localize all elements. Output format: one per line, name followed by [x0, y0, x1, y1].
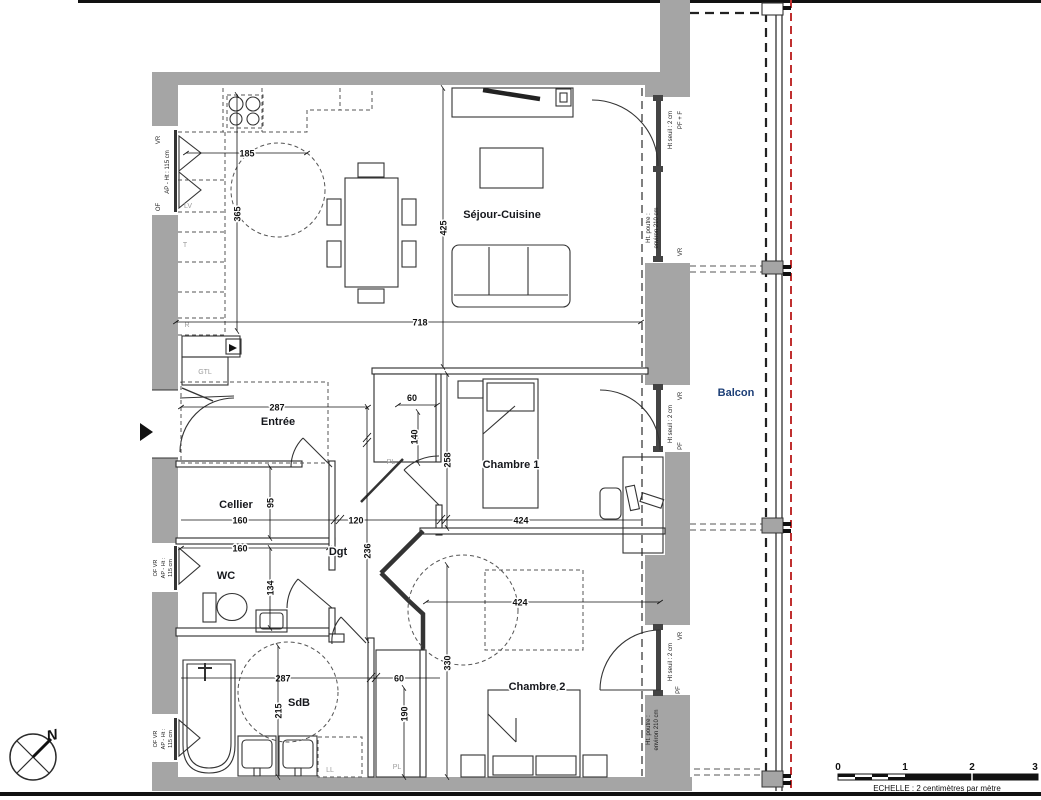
scale-caption: ECHELLE : 2 centimètres par mètre — [873, 784, 1001, 793]
desk-chair-icon — [600, 488, 621, 519]
desk-icon — [600, 457, 664, 553]
svg-text:PF: PF — [676, 686, 682, 694]
entrance-door-leaf — [180, 396, 234, 398]
dim-160-cellier: 160 — [232, 516, 247, 526]
svg-text:AP - Ht :: AP - Ht : — [161, 728, 167, 749]
gtl-electrical-panel: GTL — [182, 336, 241, 401]
bed2-icon — [488, 690, 580, 777]
beam-label: Ht. poutre : — [646, 213, 652, 243]
bathtub-icon — [183, 660, 235, 773]
dim-215: 215 — [274, 703, 284, 718]
floor-plan-page: Balcon VR OF AP - Ht : 115 cm OF VR AP -… — [0, 0, 1041, 800]
scale-bar: 0 1 2 3 ECHELLE : 2 centimètres par mètr… — [835, 762, 1038, 793]
tv-sideboard-icon — [452, 88, 573, 117]
chambre2-door-arc — [600, 630, 660, 690]
dim-365: 365 — [233, 206, 243, 221]
bed1-icon — [483, 379, 538, 508]
room-label-cellier: Cellier — [219, 499, 253, 511]
window-sejour-balcony: Ht seuil : 2 cm PF + F VR Ht. poutre : e… — [592, 95, 690, 263]
entrance-door-arc — [180, 398, 234, 452]
svg-text:PF: PF — [678, 442, 684, 450]
t-label: T — [183, 242, 188, 249]
nightstand-icon — [458, 381, 483, 398]
window-label-pf-f: PF + F — [678, 111, 684, 130]
wardrobe-zone — [485, 570, 583, 650]
scale-1: 1 — [902, 762, 908, 773]
dim-185: 185 — [239, 149, 254, 159]
dim-140: 140 — [410, 429, 420, 444]
dishwasher-label: LV — [184, 203, 192, 210]
window-label-ap-ht: AP - Ht : 115 cm — [165, 150, 171, 193]
room-label-wc: WC — [217, 570, 235, 582]
room-label-dgt: Dgt — [329, 546, 348, 558]
floor-plan-drawing: Balcon VR OF AP - Ht : 115 cm OF VR AP -… — [0, 0, 1041, 800]
room-label-balcon: Balcon — [718, 387, 755, 399]
balcony: Balcon — [690, 0, 791, 792]
svg-text:GTL: GTL — [198, 369, 212, 376]
window-label-ap: AP - Ht : — [161, 557, 167, 578]
wc-fixtures — [203, 593, 287, 632]
north-label: N — [45, 726, 60, 745]
window-label-of-vr: OF VR — [153, 560, 159, 577]
scale-0: 0 — [835, 762, 841, 773]
svg-text:Ht. poutre :: Ht. poutre : — [646, 715, 652, 745]
dim-95: 95 — [266, 498, 276, 508]
dim-718: 718 — [412, 318, 427, 328]
window-label-ht-seuil: Ht seuil : 2 cm — [668, 111, 674, 149]
kitchen-units: LV T R GTL — [178, 88, 372, 401]
entree-zone — [181, 382, 328, 463]
svg-text:OF VR: OF VR — [153, 731, 159, 748]
chambre2-closet: PL — [376, 650, 420, 777]
dim-60-sdb: 60 — [394, 674, 404, 684]
svg-text:Ht seuil : 2 cm: Ht seuil : 2 cm — [668, 405, 674, 443]
turning-circles — [181, 143, 518, 742]
scale-3: 3 — [1032, 762, 1038, 773]
dim-60-ch1: 60 — [407, 393, 417, 403]
window-kitchen: VR OF AP - Ht : 115 cm — [152, 126, 201, 215]
dim-134: 134 — [266, 580, 276, 595]
svg-text:VR: VR — [678, 247, 684, 256]
fridge-label: R — [184, 322, 189, 329]
washing-machine-label: LL — [326, 767, 334, 774]
scale-2: 2 — [969, 762, 975, 773]
closet-label-ch1: PL — [387, 459, 396, 466]
room-label-entree: Entrée — [261, 416, 295, 428]
room-label-sejour: Séjour-Cuisine — [463, 209, 541, 221]
washbasin-icons — [238, 736, 317, 776]
svg-text:115 cm: 115 cm — [168, 730, 174, 748]
tv-icon — [483, 90, 540, 99]
dim-190: 190 — [400, 706, 410, 721]
window-label-of: OF — [156, 203, 162, 212]
dim-330: 330 — [443, 655, 453, 670]
room-label-chambre1: Chambre 1 — [483, 459, 540, 471]
window-label-115cm: 115 cm — [168, 559, 174, 577]
dim-160-wc: 160 — [232, 544, 247, 554]
sdb-fixtures: LL — [183, 660, 362, 777]
svg-text:PL: PL — [393, 764, 402, 771]
dining-table-icon — [345, 178, 398, 287]
window-label-vr: VR — [156, 135, 162, 144]
coffee-table-icon — [480, 148, 543, 188]
window-chambre1: VR Ht seuil : 2 cm PF — [600, 384, 690, 452]
room-label-chambre2: Chambre 2 — [509, 681, 566, 693]
dim-120: 120 — [348, 516, 363, 526]
svg-text:Ht seuil : 2 cm: Ht seuil : 2 cm — [668, 643, 674, 681]
svg-text:VR: VR — [678, 391, 684, 400]
svg-text:VR: VR — [678, 631, 684, 640]
svg-text:environ 210 cm: environ 210 cm — [654, 709, 660, 750]
window-sdb: OF VR AP - Ht : 115 cm — [152, 714, 200, 762]
dimensions: 718 425 185 365 287 160 120 424 95 160 1… — [176, 88, 660, 777]
entrance-arrow-icon — [140, 423, 153, 441]
sejour-furniture — [327, 88, 573, 307]
dim-424-ch2: 424 — [512, 598, 527, 608]
dim-258: 258 — [443, 452, 453, 467]
washing-machine-zone — [318, 737, 362, 777]
sofa-icon — [452, 245, 570, 307]
room-label-sdb: SdB — [288, 697, 310, 709]
dim-424-ch1: 424 — [513, 516, 528, 526]
svg-text:environ 210 cm: environ 210 cm — [654, 207, 660, 248]
dim-425: 425 — [439, 220, 449, 235]
window-wc: OF VR AP - Ht : 115 cm — [152, 543, 200, 592]
dim-287-entree: 287 — [269, 403, 284, 413]
toilet-icon — [203, 593, 216, 622]
dim-236: 236 — [363, 543, 373, 558]
compass-icon: N — [10, 726, 60, 780]
